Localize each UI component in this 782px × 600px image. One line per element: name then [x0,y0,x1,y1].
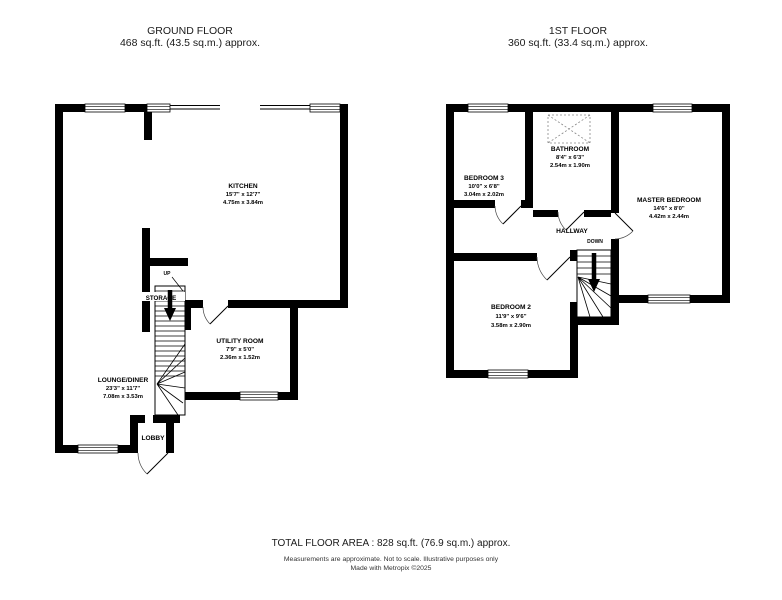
kitchen-imperial: 15'7" x 12'7" [226,192,261,198]
credit: Made with Metropix ©2025 [351,564,432,572]
window [488,370,528,378]
utility-name: UTILITY ROOM [216,338,264,345]
bathroom-name: BATHROOM [551,146,590,153]
hallway-label: HALLWAY [556,228,588,235]
lounge-metric: 7.08m x 3.53m [103,394,143,400]
bedroom3-label: BEDROOM 3 10'0" x 6'8" 3.04m x 2.02m [464,175,504,198]
utility-metric: 2.36m x 1.52m [220,355,260,361]
bedroom2-label: BEDROOM 2 11'9" x 9'6" 3.58m x 2.90m [491,304,531,329]
up-label: UP [164,271,172,277]
kitchen-label: KITCHEN 15'7" x 12'7" 4.75m x 3.84m [223,183,263,206]
window [653,104,692,112]
kitchen-metric: 4.75m x 3.84m [223,200,263,206]
utility-imperial: 7'9" x 5'0" [226,347,254,353]
down-label: DOWN [587,239,603,245]
floorplan-canvas: GROUND FLOOR 468 sq.ft. (43.5 sq.m.) app… [0,0,782,600]
bedroom2-imperial: 11'9" x 9'6" [496,314,527,320]
window [240,392,278,400]
bedroom2-metric: 3.58m x 2.90m [491,323,531,329]
first-floor-stairs: DOWN [577,239,611,317]
ground-floor-title: GROUND FLOOR [147,25,233,37]
bedroom3-metric: 3.04m x 2.02m [464,192,504,198]
master-imperial: 14'6" x 8'0" [653,206,685,212]
ground-floor-area: 468 sq.ft. (43.5 sq.m.) approx. [120,37,260,49]
master-name: MASTER BEDROOM [637,197,702,204]
bedroom3-imperial: 10'0" x 6'8" [468,184,500,190]
window [648,295,690,303]
window [468,104,508,112]
window [85,104,125,112]
bedroom3-name: BEDROOM 3 [464,175,504,182]
bathroom-label: BATHROOM 8'4" x 6'3" 2.54m x 1.90m [550,146,590,169]
master-metric: 4.42m x 2.44m [649,214,689,220]
first-floor-title: 1ST FLOOR [549,25,608,37]
lounge-name: LOUNGE/DINER [98,377,149,384]
window [78,445,118,453]
kitchen-name: KITCHEN [228,183,258,190]
window [310,104,340,112]
bathroom-imperial: 8'4" x 6'3" [556,155,584,161]
lounge-imperial: 23'3" x 11'7" [106,386,140,392]
total-floor-area: TOTAL FLOOR AREA : 828 sq.ft. (76.9 sq.m… [272,538,511,549]
disclaimer: Measurements are approximate. Not to sca… [284,556,499,563]
lobby-label: LOBBY [141,435,165,442]
bedroom2-name: BEDROOM 2 [491,304,531,311]
window [147,104,170,112]
bathroom-metric: 2.54m x 1.90m [550,163,590,169]
first-floor-area: 360 sq.ft. (33.4 sq.m.) approx. [508,37,648,49]
